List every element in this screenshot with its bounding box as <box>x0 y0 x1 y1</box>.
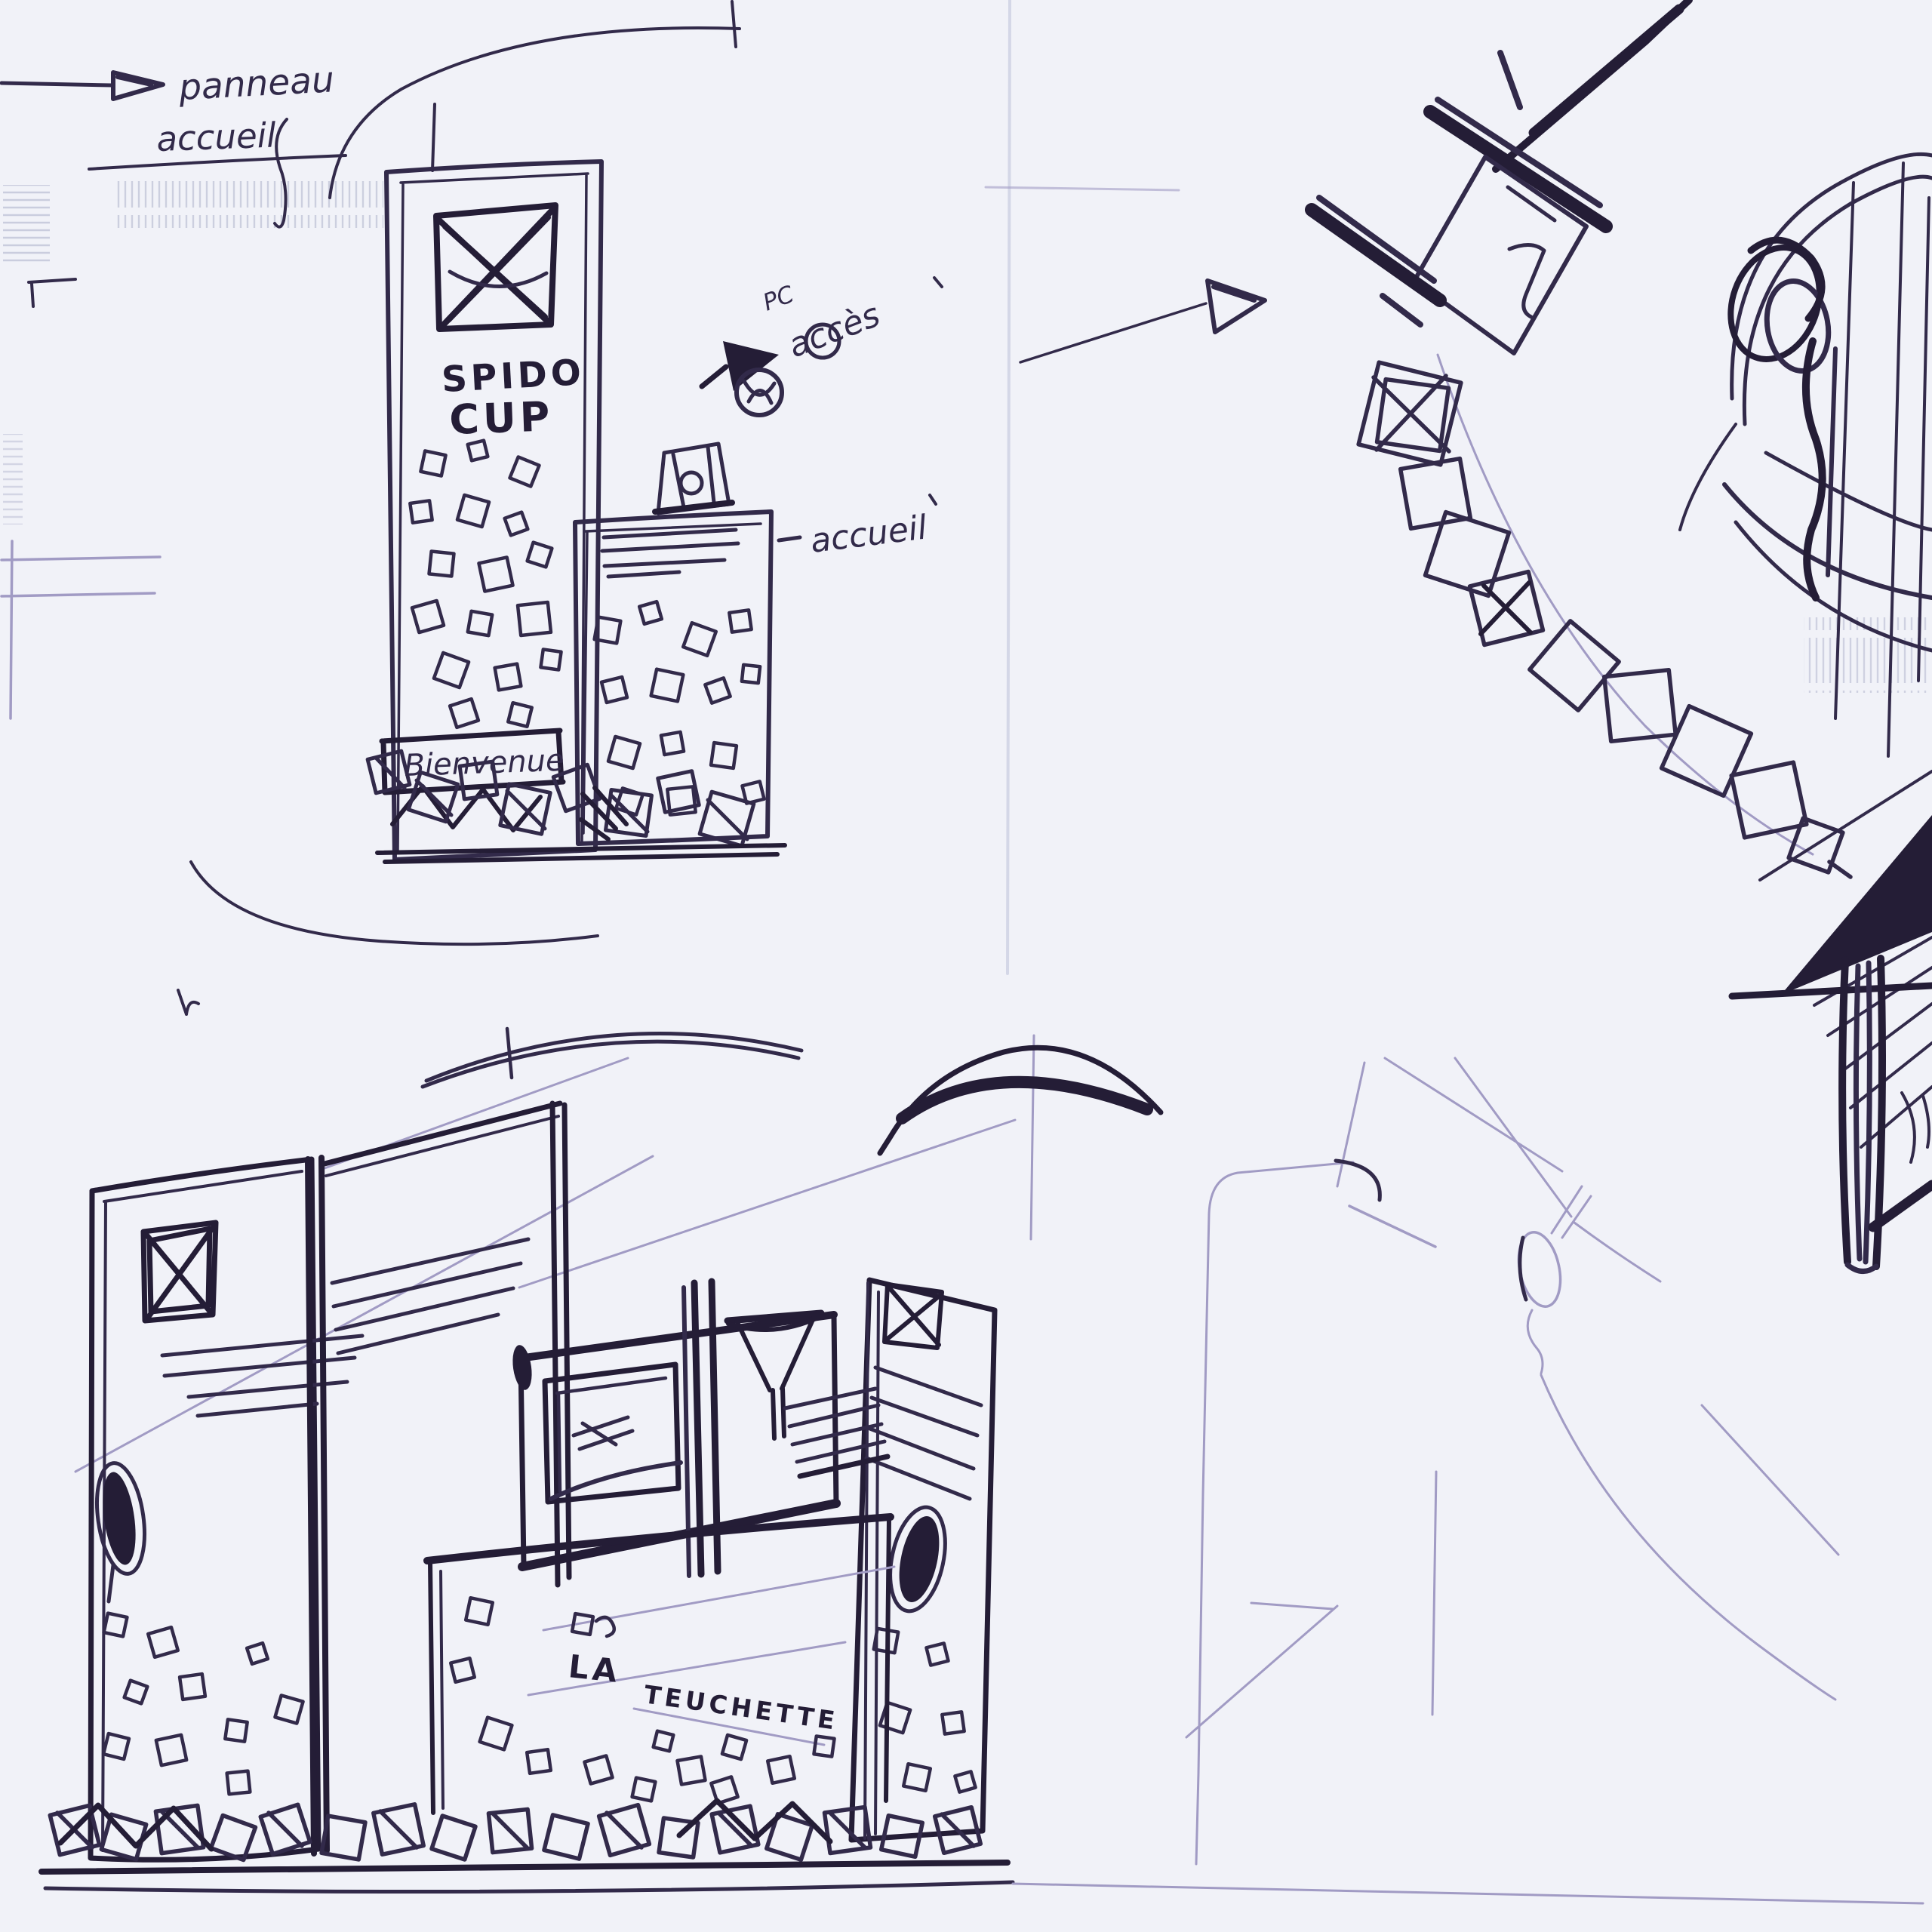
note-accueil: accueil <box>779 495 936 561</box>
scan-seam <box>1008 0 1010 974</box>
dark-oval-paddle <box>91 1460 151 1601</box>
flag-totem-sketch <box>1312 0 1689 353</box>
stand-perspective-sketch: LA TEUCHETTE <box>42 1029 1923 1903</box>
cube-cascade <box>1358 355 1850 877</box>
flag-crossbar-2 <box>1312 210 1440 300</box>
x-logo-icon <box>436 205 555 329</box>
text-hash-lines <box>162 1336 362 1416</box>
stand-label-word2: TEUCHETTE <box>642 1679 840 1736</box>
note-acces: PC accès <box>702 278 942 415</box>
access-note-prefix: PC <box>759 281 798 317</box>
hash-mark <box>574 1417 632 1449</box>
totem-cube-field <box>410 441 561 728</box>
side-panel <box>575 444 771 844</box>
cone-shape <box>728 1313 821 1438</box>
ring-knot <box>1715 235 1835 598</box>
pointer-arrow <box>1020 281 1265 362</box>
note-dash <box>779 537 800 540</box>
cascade-guide-arc <box>1438 355 1813 854</box>
arrow-right-icon <box>1207 281 1265 332</box>
arrow-shaft <box>702 367 726 386</box>
note-panneau-line2: accueil <box>156 115 278 159</box>
arrow-up-right-icon <box>723 341 779 391</box>
frame-curve-bottom <box>191 862 598 944</box>
right-panel <box>851 1280 995 1840</box>
ground-lines <box>42 1863 1923 1903</box>
scanned-sketch-page: panneau accueil SPIDO CUP <box>0 0 1932 1932</box>
sketch-canvas: panneau accueil SPIDO CUP <box>0 0 1932 1932</box>
small-oval <box>1512 1186 1591 1310</box>
totem-stand-sketch: SPIDO CUP Bienvenue <box>178 2 942 1014</box>
side-panel-cube-field <box>581 601 764 839</box>
arrow-shaft <box>1020 303 1206 362</box>
arrow-shaft <box>2 83 112 85</box>
middle-panel <box>325 1103 569 1585</box>
pencil-construction-lines <box>1186 1058 1838 1864</box>
left-cube-field <box>103 1614 303 1795</box>
top-bracket-curve <box>423 1034 801 1088</box>
crescent-stroke <box>902 1082 1147 1118</box>
stand-label-word1: LA <box>567 1647 623 1690</box>
ground-cube-pile <box>50 1801 980 1860</box>
reception-note-text: accueil <box>808 508 930 561</box>
x-logo-icon <box>143 1223 216 1321</box>
totem-title-line2: CUP <box>448 392 554 444</box>
diagonal-hash-lines <box>866 1367 981 1499</box>
note-panneau-accueil: panneau accueil <box>2 59 346 169</box>
tick-mark <box>178 990 198 1014</box>
lamp-icon <box>655 444 732 513</box>
lower-box: LA TEUCHETTE <box>427 1517 894 1813</box>
side-panel-header-lines <box>602 530 738 577</box>
note-panneau-line1: panneau <box>177 59 335 109</box>
note-underline <box>89 155 346 169</box>
flag-panel <box>1414 157 1586 353</box>
arrow-right-icon <box>113 72 163 99</box>
roof-mast-sketch <box>1732 771 1932 1272</box>
scan-texture <box>0 0 1930 974</box>
